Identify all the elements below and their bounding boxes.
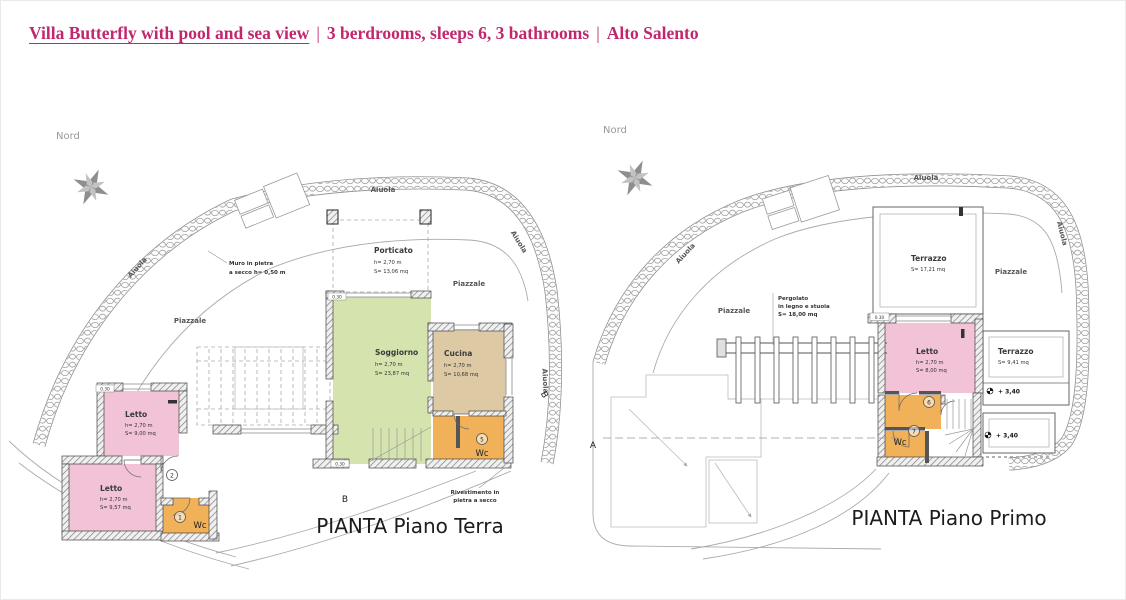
pergolato-annotation: in legno e stuoia [778, 304, 830, 310]
rivestimento-annotation: pietra a secco [453, 498, 497, 504]
compass-rose-icon [63, 159, 118, 214]
terrazzo-est-surface: S= 9,41 mq [998, 360, 1029, 366]
piazzale-label: Piazzale [718, 307, 751, 315]
letto-sud-name: Letto [100, 484, 122, 493]
muro-annotation: a secco h= 0,50 m [229, 270, 286, 276]
pergolato-annotation: S= 18,00 mq [778, 312, 818, 318]
cucina-surface: S= 10,68 mq [444, 372, 478, 378]
annotation-leader [479, 468, 504, 488]
porticato-name: Porticato [374, 246, 413, 255]
level-value: + 3,40 [996, 433, 1018, 440]
porticato-pillar [420, 210, 431, 224]
aiuola-label: Aiuola [371, 186, 396, 194]
windows [896, 316, 951, 321]
soggiorno-height: h= 2,70 m [375, 362, 403, 368]
svg-text:0.30: 0.30 [100, 387, 110, 393]
wc-7-name: Wc [893, 438, 906, 448]
terrazzo-nord-name: Terrazzo [911, 254, 947, 263]
piazzale-label: Piazzale [995, 268, 1028, 276]
letto-surface: S= 8,00 mq [916, 368, 947, 374]
letto-height: h= 2,70 m [916, 360, 944, 366]
wc-1-name: Wc [193, 521, 206, 531]
porticato-height: h= 2,70 m [374, 260, 402, 266]
section-letter-b: B [342, 495, 348, 505]
letto-nord-surface: S= 9,00 mq [125, 431, 156, 437]
courtyard-pergola-dashed [197, 347, 330, 425]
section-letter-b: B [538, 390, 550, 400]
soggiorno-surface: S= 23,87 mq [375, 371, 409, 377]
level-marker-icon [985, 432, 991, 438]
wc-5-name: Wc [475, 449, 488, 459]
svg-text:0.30: 0.30 [875, 315, 885, 321]
radiator-mark [168, 400, 177, 404]
annotation-leader [208, 251, 227, 263]
svg-text:0.30: 0.30 [332, 295, 342, 301]
dimension-030: 0.30 [870, 313, 889, 321]
cucina-name: Cucina [444, 349, 472, 358]
floorplans-canvas: Nord [1, 1, 1126, 600]
level-value: + 3,40 [998, 389, 1020, 396]
aiuola-label: Aiuola [509, 229, 529, 254]
soggiorno-name: Soggiorno [375, 348, 418, 357]
plan-title-terra: PIANTA Piano Terra [316, 514, 503, 538]
terrazzo-nord-surface: S= 17,21 mq [911, 267, 945, 273]
radiator-mark [961, 329, 965, 338]
plan-piano-primo: Nord [590, 125, 1083, 559]
porticato-surface: S= 13,06 mq [374, 269, 408, 275]
north-label: Nord [603, 125, 627, 136]
terrazzo-est-name: Terrazzo [998, 347, 1034, 356]
terrace-door-mark [959, 207, 963, 216]
piazzale-label: Piazzale [453, 280, 486, 288]
level-marker-icon [987, 388, 993, 394]
pergola-structure [717, 337, 887, 403]
muro-annotation: Muro in pietra [229, 261, 273, 267]
aiuola-label: Aiuola [914, 174, 939, 182]
svg-text:0.30: 0.30 [335, 462, 345, 468]
room-number: 1 [178, 516, 182, 522]
cucina-height: h= 2,70 m [444, 363, 472, 369]
compass-rose-icon [607, 150, 662, 205]
room-wc-5 [433, 416, 506, 464]
section-letter-a: A [590, 441, 597, 451]
pergolato-annotation: Pergolato [778, 296, 808, 302]
letto-sud-height: h= 2,70 m [100, 497, 128, 503]
floorplan-listing-page: Villa Butterfly with pool and sea view|3… [0, 0, 1126, 600]
room-number: 7 [912, 430, 916, 436]
north-label: Nord [56, 131, 80, 142]
letto-name: Letto [916, 347, 938, 356]
plan-title-primo: PIANTA Piano Primo [851, 506, 1046, 530]
garden-gate [234, 173, 310, 230]
room-soggiorno [333, 297, 431, 464]
porticato-pillar [327, 210, 338, 224]
letto-nord-height: h= 2,70 m [125, 423, 153, 429]
plan-piano-terra: Nord [9, 131, 556, 569]
room-number: 5 [480, 438, 484, 444]
staircase [945, 399, 973, 456]
letto-sud-surface: S= 9,57 mq [100, 505, 131, 511]
room-number: 6 [927, 401, 931, 407]
piazzale-label: Piazzale [174, 317, 207, 325]
rivestimento-annotation: Rivestimento in [451, 490, 500, 496]
room-number: 2 [170, 474, 174, 480]
letto-nord-name: Letto [125, 410, 147, 419]
